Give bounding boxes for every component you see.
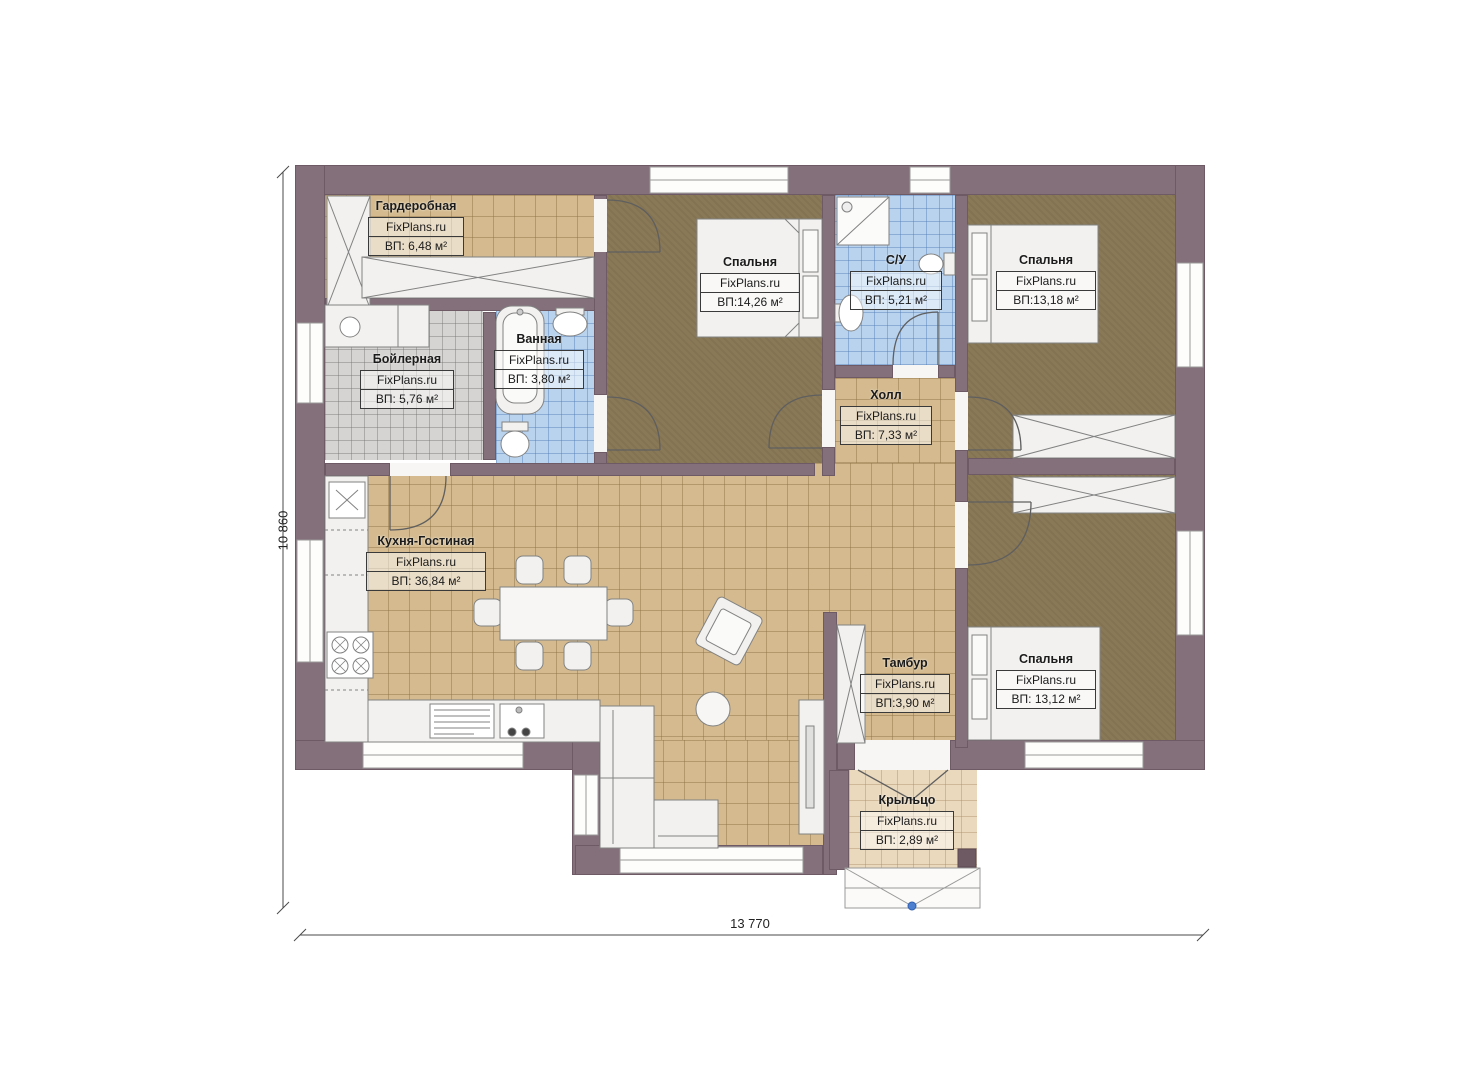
watermark: FixPlans.ru bbox=[841, 407, 931, 425]
room-label-bedroom-3: Спальня FixPlans.ru ВП: 13,12 м² bbox=[996, 652, 1096, 709]
dining-table bbox=[474, 556, 633, 670]
room-area: ВП: 5,76 м² bbox=[361, 389, 453, 408]
room-info-box: FixPlans.ru ВП:3,90 м² bbox=[860, 674, 950, 713]
room-info-box: FixPlans.ru ВП:14,26 м² bbox=[700, 273, 800, 312]
shower bbox=[837, 197, 889, 245]
room-area: ВП:14,26 м² bbox=[701, 292, 799, 311]
room-area: ВП: 2,89 м² bbox=[861, 830, 953, 849]
room-info-box: FixPlans.ru ВП: 5,76 м² bbox=[360, 370, 454, 409]
wardrobe-unit bbox=[1013, 477, 1175, 513]
sofa bbox=[600, 706, 718, 848]
watermark: FixPlans.ru bbox=[495, 351, 583, 369]
room-label-bedroom-2: Спальня FixPlans.ru ВП:13,18 м² bbox=[996, 253, 1096, 310]
toilet bbox=[501, 422, 529, 457]
room-name: Спальня bbox=[996, 253, 1096, 267]
floor-plan: Гардеробная FixPlans.ru ВП: 6,48 м² Бойл… bbox=[0, 0, 1474, 1080]
room-label-boiler: Бойлерная FixPlans.ru ВП: 5,76 м² bbox=[360, 352, 454, 409]
room-label-hall: Холл FixPlans.ru ВП: 7,33 м² bbox=[840, 388, 932, 445]
room-area: ВП: 36,84 м² bbox=[367, 571, 485, 590]
room-info-box: FixPlans.ru ВП: 5,21 м² bbox=[850, 271, 942, 310]
coffee-table bbox=[696, 692, 730, 726]
dimension-height: 10 860 bbox=[276, 481, 291, 581]
dimension-width: 13 770 bbox=[700, 916, 800, 931]
watermark: FixPlans.ru bbox=[361, 371, 453, 389]
room-info-box: FixPlans.ru ВП: 6,48 м² bbox=[368, 217, 464, 256]
door-wc bbox=[893, 312, 938, 365]
room-area: ВП: 7,33 м² bbox=[841, 425, 931, 444]
room-name: Крыльцо bbox=[860, 793, 954, 807]
watermark: FixPlans.ru bbox=[997, 671, 1095, 689]
room-info-box: FixPlans.ru ВП: 2,89 м² bbox=[860, 811, 954, 850]
room-label-vestibule: Тамбур FixPlans.ru ВП:3,90 м² bbox=[860, 656, 950, 713]
watermark: FixPlans.ru bbox=[997, 272, 1095, 290]
room-info-box: FixPlans.ru ВП: 36,84 м² bbox=[366, 552, 486, 591]
door-bathroom bbox=[607, 397, 660, 450]
boiler-counter bbox=[325, 305, 429, 347]
porch-steps bbox=[845, 868, 980, 910]
watermark: FixPlans.ru bbox=[861, 812, 953, 830]
kitchen-counter bbox=[368, 700, 600, 742]
room-label-wardrobe: Гардеробная FixPlans.ru ВП: 6,48 м² bbox=[368, 199, 464, 256]
room-area: ВП: 13,12 м² bbox=[997, 689, 1095, 708]
room-area: ВП:13,18 м² bbox=[997, 290, 1095, 309]
room-name: Холл bbox=[840, 388, 932, 402]
room-info-box: FixPlans.ru ВП:13,18 м² bbox=[996, 271, 1096, 310]
room-name: Тамбур bbox=[860, 656, 950, 670]
room-info-box: FixPlans.ru ВП: 7,33 м² bbox=[840, 406, 932, 445]
room-label-kitchen-living: Кухня-Гостиная FixPlans.ru ВП: 36,84 м² bbox=[366, 534, 486, 591]
watermark: FixPlans.ru bbox=[367, 553, 485, 571]
door-bedroom-1 bbox=[769, 395, 822, 448]
porch-post bbox=[958, 849, 976, 867]
room-name: Спальня bbox=[996, 652, 1096, 666]
room-info-box: FixPlans.ru ВП: 13,12 м² bbox=[996, 670, 1096, 709]
watermark: FixPlans.ru bbox=[861, 675, 949, 693]
room-name: С/У bbox=[850, 253, 942, 267]
watermark: FixPlans.ru bbox=[369, 218, 463, 236]
room-area: ВП:3,90 м² bbox=[861, 693, 949, 712]
room-area: ВП: 3,80 м² bbox=[495, 369, 583, 388]
room-name: Гардеробная bbox=[368, 199, 464, 213]
oven bbox=[430, 704, 494, 738]
room-name: Спальня bbox=[700, 255, 800, 269]
armchair bbox=[694, 595, 763, 666]
stove bbox=[327, 632, 373, 678]
room-name: Бойлерная bbox=[360, 352, 454, 366]
kitchen-sink bbox=[500, 704, 544, 738]
room-label-wc: С/У FixPlans.ru ВП: 5,21 м² bbox=[850, 253, 942, 310]
kitchen-counter bbox=[325, 476, 368, 742]
door-boiler bbox=[390, 476, 446, 530]
room-name: Ванная bbox=[494, 332, 584, 346]
door-wardrobe bbox=[607, 200, 660, 252]
wardrobe-unit bbox=[1013, 415, 1175, 458]
watermark: FixPlans.ru bbox=[851, 272, 941, 290]
room-area: ВП: 5,21 м² bbox=[851, 290, 941, 309]
watermark: FixPlans.ru bbox=[701, 274, 799, 292]
room-label-porch: Крыльцо FixPlans.ru ВП: 2,89 м² bbox=[860, 793, 954, 850]
room-name: Кухня-Гостиная bbox=[366, 534, 486, 548]
room-info-box: FixPlans.ru ВП: 3,80 м² bbox=[494, 350, 584, 389]
room-label-bedroom-1: Спальня FixPlans.ru ВП:14,26 м² bbox=[700, 255, 800, 312]
tv-stand bbox=[799, 700, 824, 834]
room-label-bathroom: Ванная FixPlans.ru ВП: 3,80 м² bbox=[494, 332, 584, 389]
wardrobe-unit bbox=[362, 257, 594, 298]
room-area: ВП: 6,48 м² bbox=[369, 236, 463, 255]
entry-marker bbox=[908, 902, 916, 910]
